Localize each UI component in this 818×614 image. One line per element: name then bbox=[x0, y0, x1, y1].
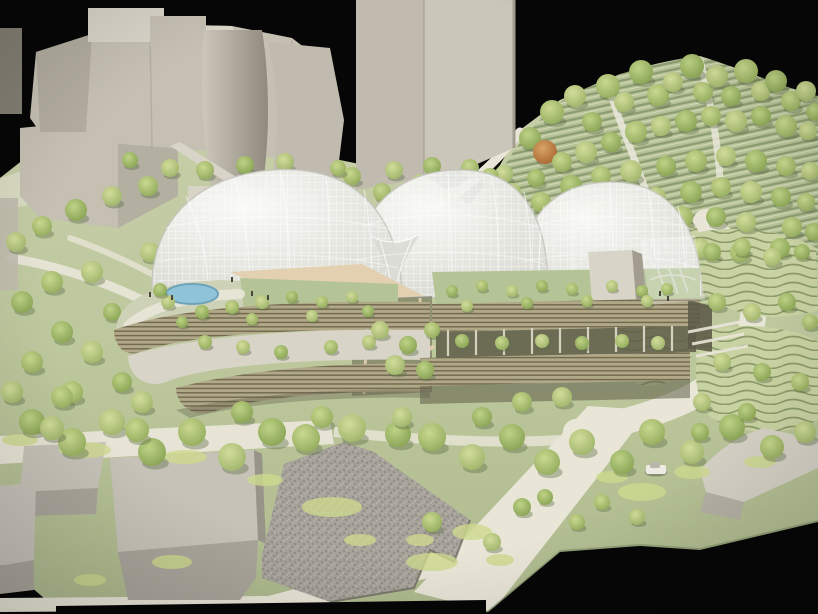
model-scene-svg bbox=[0, 0, 818, 614]
photo-vignette bbox=[0, 0, 818, 614]
architectural-model-photo bbox=[0, 0, 818, 614]
